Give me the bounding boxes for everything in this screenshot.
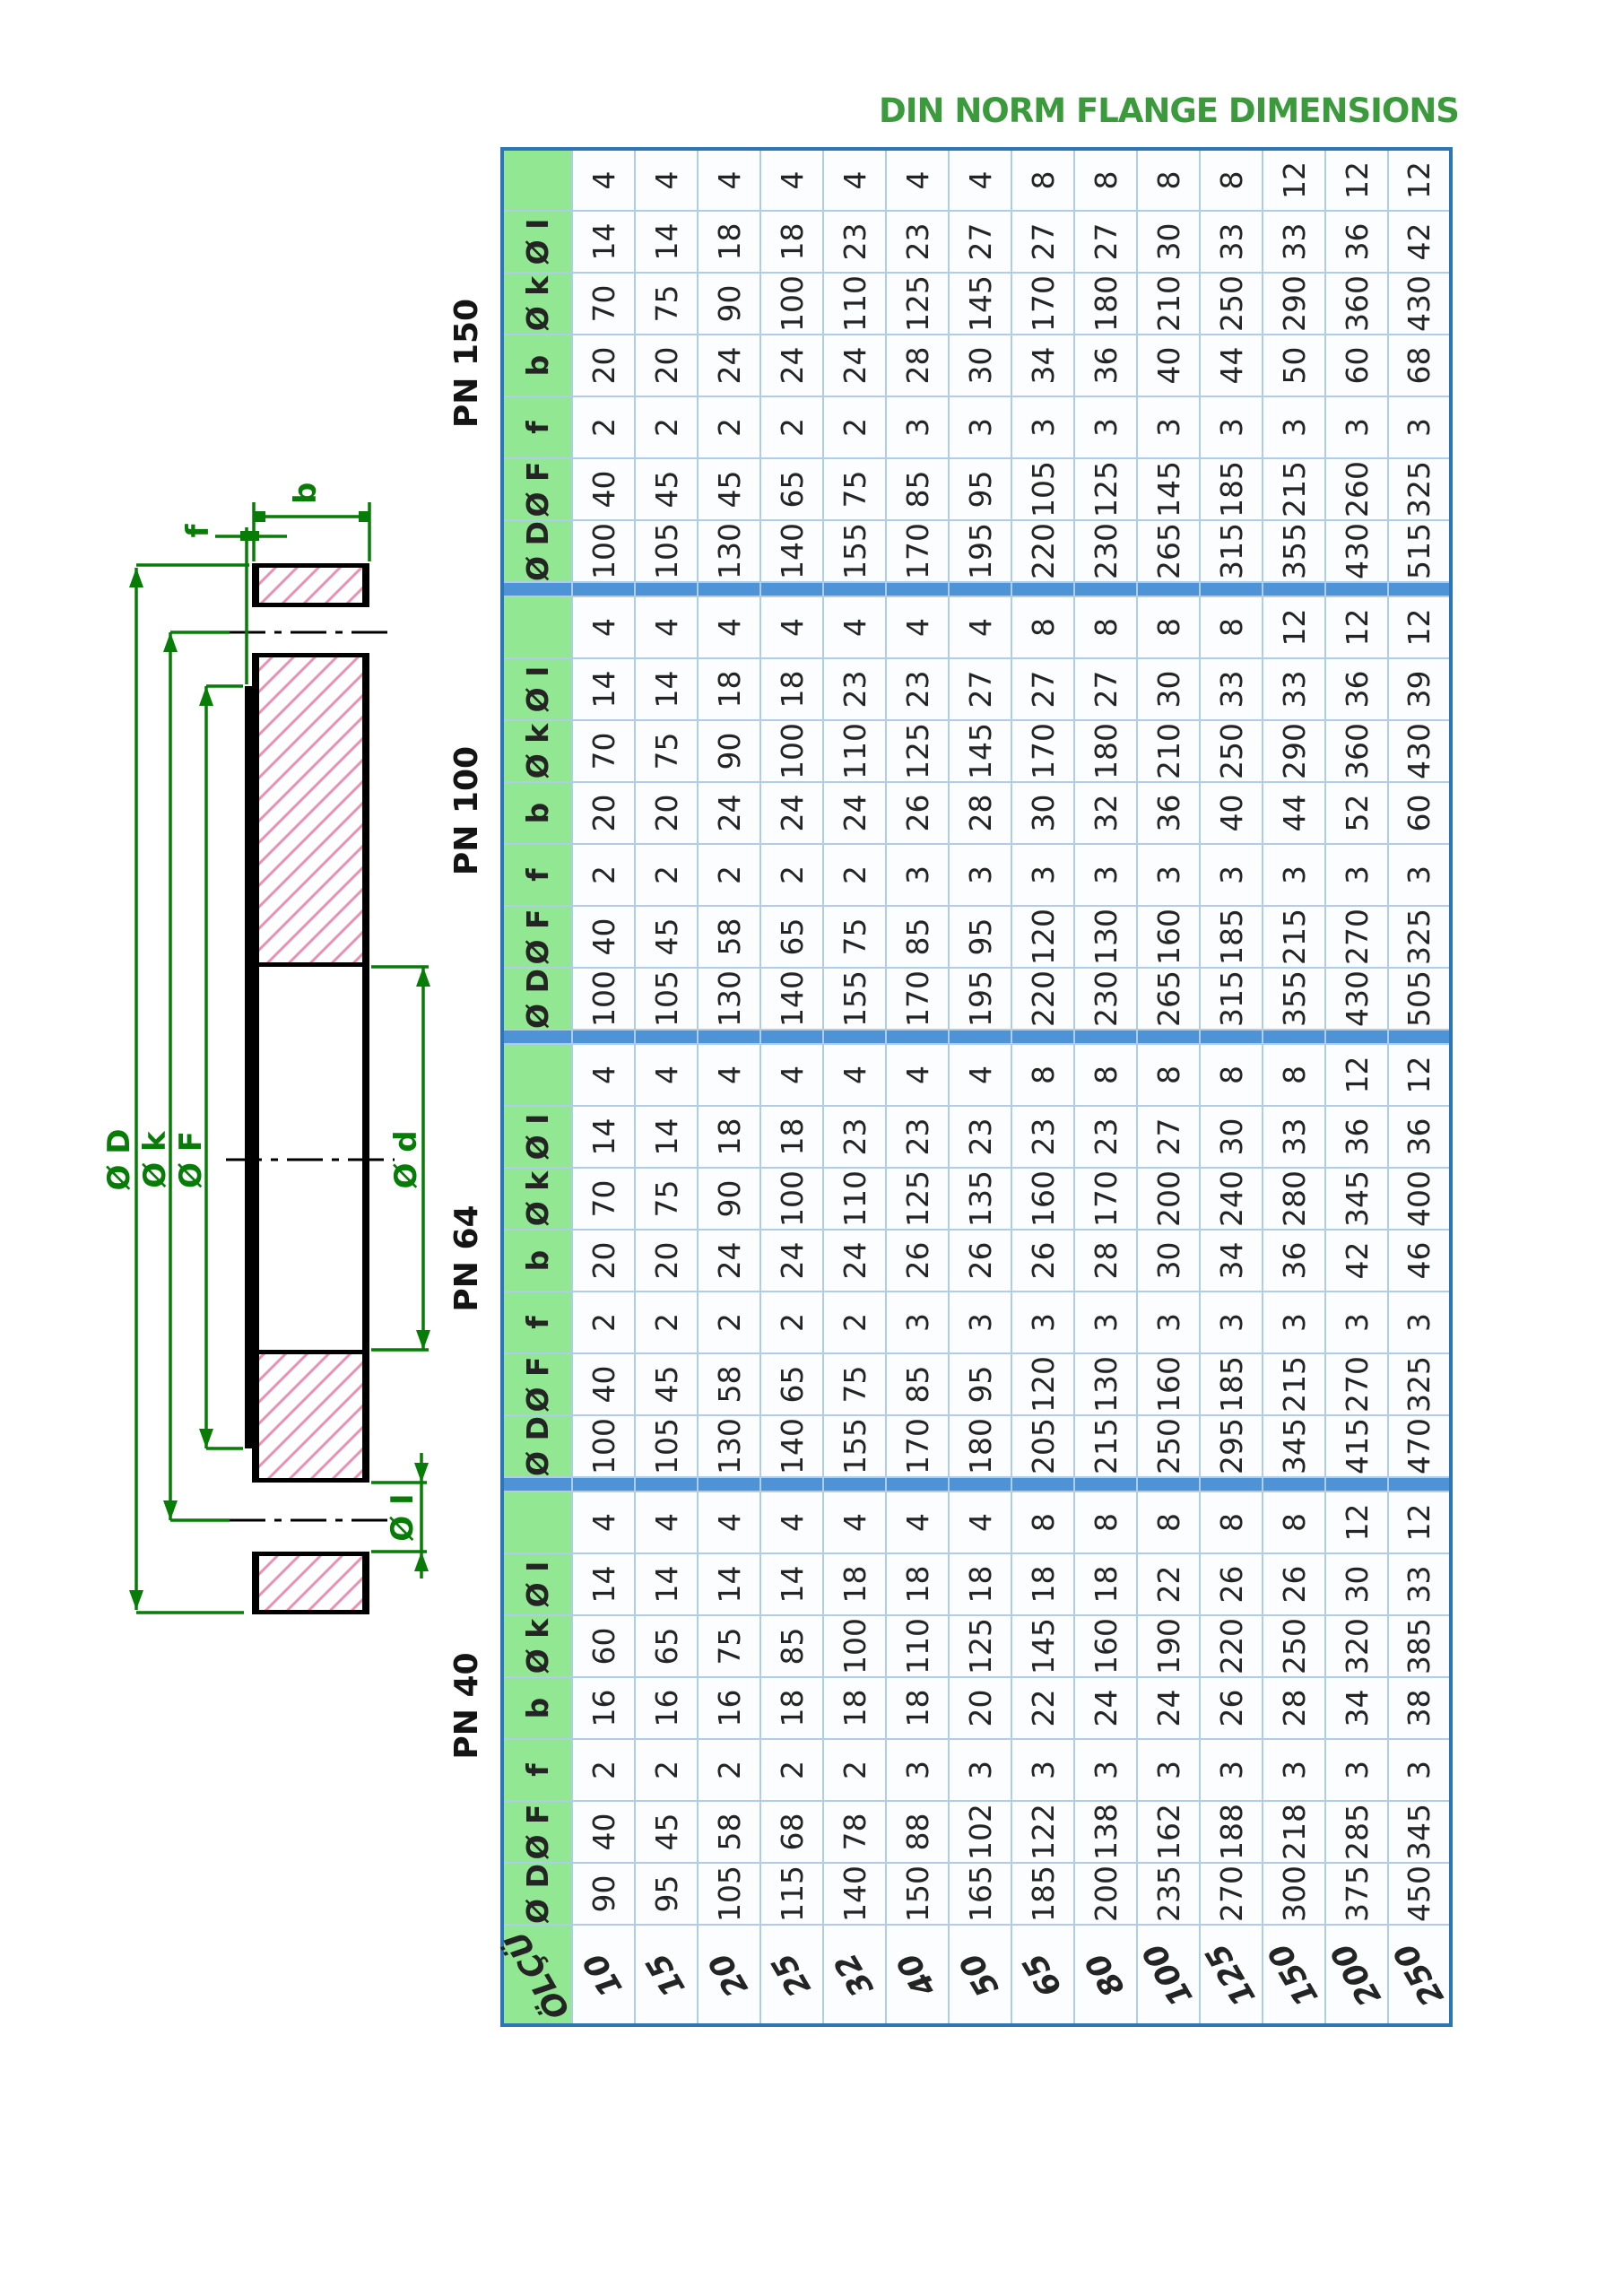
table-cell: 34 bbox=[1325, 1677, 1388, 1739]
group-separator bbox=[635, 1477, 698, 1492]
group-separator bbox=[1074, 1030, 1137, 1044]
table-cell: 3 bbox=[1388, 1291, 1451, 1353]
table-cell: 2 bbox=[823, 396, 886, 458]
table-cell: 3 bbox=[1200, 1291, 1263, 1353]
table-cell: 125 bbox=[886, 1168, 949, 1230]
table-cell: 430 bbox=[1325, 520, 1388, 582]
table-cell: 42 bbox=[1325, 1230, 1388, 1291]
table-cell: 4 bbox=[823, 149, 886, 211]
table-cell: 3 bbox=[886, 844, 949, 906]
table-cell: 16 bbox=[572, 1677, 635, 1739]
col-header: Ø D bbox=[502, 520, 572, 582]
table-cell: 90 bbox=[698, 1168, 760, 1230]
table-cell: 180 bbox=[1074, 273, 1137, 335]
table-cell: 170 bbox=[886, 1415, 949, 1477]
table-cell: 4 bbox=[886, 149, 949, 211]
table-cell: 14 bbox=[635, 211, 698, 273]
dim-line-F bbox=[206, 686, 243, 1448]
table-cell: 2 bbox=[698, 844, 760, 906]
table-cell: 8 bbox=[1074, 1492, 1137, 1553]
table-cell: 250 bbox=[1137, 1415, 1200, 1477]
table-cell: 75 bbox=[635, 273, 698, 335]
table-cell: 28 bbox=[949, 782, 1011, 844]
diagonal-label: 200 bbox=[1324, 1937, 1388, 2012]
table-cell: 26 bbox=[886, 1230, 949, 1291]
table-cell: 140 bbox=[760, 520, 823, 582]
table-cell: 45 bbox=[698, 458, 760, 520]
group-separator bbox=[886, 582, 949, 596]
group-separator bbox=[1388, 582, 1451, 596]
table-cell: 105 bbox=[698, 1863, 760, 1925]
table-cell: 4 bbox=[698, 149, 760, 211]
group-separator bbox=[1325, 582, 1388, 596]
group-separator bbox=[1137, 1477, 1200, 1492]
table-cell: 2 bbox=[760, 844, 823, 906]
table-cell: 375 bbox=[1325, 1863, 1388, 1925]
table-cell: 2 bbox=[823, 844, 886, 906]
table-cell: 24 bbox=[760, 782, 823, 844]
table-cell: 70 bbox=[572, 273, 635, 335]
table-cell: 23 bbox=[886, 658, 949, 720]
table-cell: 20 bbox=[635, 782, 698, 844]
group-separator bbox=[1263, 582, 1325, 596]
table-cell: 12 bbox=[1263, 596, 1325, 658]
table-cell: 27 bbox=[949, 211, 1011, 273]
table-cell: 450 bbox=[1388, 1863, 1451, 1925]
group-separator bbox=[1325, 1477, 1388, 1492]
table-cell: 30 bbox=[1137, 1230, 1200, 1291]
table-cell: 33 bbox=[1200, 211, 1263, 273]
table-cell: 4 bbox=[572, 596, 635, 658]
table-cell: 145 bbox=[949, 273, 1011, 335]
col-header: f bbox=[502, 396, 572, 458]
group-separator bbox=[502, 582, 572, 596]
table-cell: 78 bbox=[823, 1801, 886, 1863]
table-cell: 122 bbox=[1011, 1801, 1074, 1863]
table-cell: 8 bbox=[1074, 596, 1137, 658]
table-cell: 140 bbox=[760, 1415, 823, 1477]
table-cell: 8 bbox=[1011, 1044, 1074, 1106]
col-header: b bbox=[502, 1677, 572, 1739]
table-cell: 315 bbox=[1200, 520, 1263, 582]
table-cell: 26 bbox=[886, 782, 949, 844]
table-cell: 65 bbox=[635, 1615, 698, 1677]
table-cell: 2 bbox=[635, 844, 698, 906]
table-cell: 355 bbox=[1263, 968, 1325, 1030]
table-cell: 4 bbox=[886, 1492, 949, 1553]
table-cell: 85 bbox=[886, 1353, 949, 1415]
table-cell: 100 bbox=[572, 520, 635, 582]
table-cell: 240 bbox=[1200, 1168, 1263, 1230]
group-separator bbox=[1011, 1477, 1074, 1492]
table-cell: 138 bbox=[1074, 1801, 1137, 1863]
table-cell: 180 bbox=[949, 1415, 1011, 1477]
dim-label-d: Ø d bbox=[388, 1130, 424, 1188]
col-header bbox=[502, 149, 572, 211]
table-cell: 33 bbox=[1263, 1106, 1325, 1168]
table-cell: 2 bbox=[823, 1739, 886, 1801]
table-cell: 18 bbox=[823, 1677, 886, 1739]
table-cell: 16 bbox=[635, 1677, 698, 1739]
table-cell: 45 bbox=[635, 1353, 698, 1415]
table-cell: 430 bbox=[1388, 273, 1451, 335]
table-cell: 90 bbox=[572, 1863, 635, 1925]
table-cell: 18 bbox=[760, 658, 823, 720]
table-cell: 52 bbox=[1325, 782, 1388, 844]
table-cell: 130 bbox=[1074, 906, 1137, 968]
table-cell: 4 bbox=[823, 596, 886, 658]
group-separator bbox=[1200, 1030, 1263, 1044]
table-cell: 18 bbox=[698, 658, 760, 720]
table-cell: 2 bbox=[635, 1739, 698, 1801]
table-cell: 195 bbox=[949, 520, 1011, 582]
table-cell: 30 bbox=[1325, 1553, 1388, 1615]
table-cell: 270 bbox=[1325, 906, 1388, 968]
table-cell: 18 bbox=[698, 211, 760, 273]
diagonal-label: 25 bbox=[765, 1946, 818, 2002]
table-cell: 200 bbox=[1137, 1168, 1200, 1230]
table-cell: 215 bbox=[1074, 1415, 1137, 1477]
table-cell: 3 bbox=[1325, 844, 1388, 906]
group-separator bbox=[1263, 1030, 1325, 1044]
table-cell: 88 bbox=[886, 1801, 949, 1863]
table-cell: 290 bbox=[1263, 720, 1325, 782]
table-cell: 26 bbox=[1200, 1677, 1263, 1739]
table-cell: 75 bbox=[823, 1353, 886, 1415]
size-label: 65 bbox=[1011, 1925, 1074, 2025]
table-cell: 85 bbox=[760, 1615, 823, 1677]
table-cell: 120 bbox=[1011, 906, 1074, 968]
table-cell: 14 bbox=[572, 658, 635, 720]
table-cell: 8 bbox=[1137, 1492, 1200, 1553]
table-cell: 12 bbox=[1388, 596, 1451, 658]
table-cell: 44 bbox=[1200, 335, 1263, 396]
group-separator bbox=[760, 1477, 823, 1492]
table-cell: 3 bbox=[1074, 396, 1137, 458]
group-separator bbox=[760, 582, 823, 596]
table-cell: 75 bbox=[823, 458, 886, 520]
table-cell: 105 bbox=[635, 1415, 698, 1477]
table-cell: 205 bbox=[1011, 1415, 1074, 1477]
table-cell: 285 bbox=[1325, 1801, 1388, 1863]
table-cell: 3 bbox=[1388, 1739, 1451, 1801]
col-header: b bbox=[502, 782, 572, 844]
table-cell: 3 bbox=[1137, 1291, 1200, 1353]
dim-label-k: Ø k bbox=[137, 1130, 173, 1188]
table-cell: 12 bbox=[1388, 1492, 1451, 1553]
group-separator bbox=[698, 1030, 760, 1044]
table-cell: 20 bbox=[635, 335, 698, 396]
table-cell: 33 bbox=[1200, 658, 1263, 720]
table-cell: 8 bbox=[1200, 149, 1263, 211]
table-cell: 14 bbox=[572, 211, 635, 273]
rotated-sheet: PN 40PN 64PN 100PN 150 bbox=[0, 143, 1493, 2027]
table-cell: 30 bbox=[1200, 1106, 1263, 1168]
table-cell: 18 bbox=[823, 1553, 886, 1615]
flange-drawing: Ø D Ø k Ø F Ø d Ø I f b bbox=[76, 475, 439, 1641]
table-cell: 24 bbox=[760, 1230, 823, 1291]
table-cell: 220 bbox=[1011, 520, 1074, 582]
size-label: 50 bbox=[949, 1925, 1011, 2025]
group-separator bbox=[1011, 1030, 1074, 1044]
col-header: b bbox=[502, 335, 572, 396]
table-cell: 3 bbox=[1200, 1739, 1263, 1801]
table-cell: 14 bbox=[760, 1553, 823, 1615]
table-cell: 185 bbox=[1200, 1353, 1263, 1415]
col-header: Ø D bbox=[502, 1415, 572, 1477]
table-cell: 105 bbox=[635, 968, 698, 1030]
table-cell: 26 bbox=[1200, 1553, 1263, 1615]
table-cell: 33 bbox=[1263, 211, 1325, 273]
table-cell: 23 bbox=[886, 211, 949, 273]
table-cell: 210 bbox=[1137, 273, 1200, 335]
table-cell: 45 bbox=[635, 458, 698, 520]
table-cell: 145 bbox=[949, 720, 1011, 782]
table-cell: 4 bbox=[698, 1044, 760, 1106]
table-cell: 2 bbox=[572, 844, 635, 906]
size-label: 40 bbox=[886, 1925, 949, 2025]
col-header: Ø k bbox=[502, 273, 572, 335]
table-cell: 36 bbox=[1325, 658, 1388, 720]
table-cell: 95 bbox=[949, 906, 1011, 968]
col-header: f bbox=[502, 1291, 572, 1353]
table-cell: 180 bbox=[1074, 720, 1137, 782]
table-cell: 27 bbox=[1011, 658, 1074, 720]
table-cell: 155 bbox=[823, 520, 886, 582]
table-cell: 20 bbox=[572, 782, 635, 844]
table-cell: 2 bbox=[635, 1291, 698, 1353]
table-cell: 110 bbox=[823, 273, 886, 335]
table-cell: 2 bbox=[823, 1291, 886, 1353]
pn-label: PN 150 bbox=[448, 256, 485, 471]
table-cell: 218 bbox=[1263, 1801, 1325, 1863]
table-cell: 45 bbox=[635, 1801, 698, 1863]
table-cell: 22 bbox=[1011, 1677, 1074, 1739]
group-separator bbox=[1074, 582, 1137, 596]
size-label: 32 bbox=[823, 1925, 886, 2025]
table-cell: 430 bbox=[1388, 720, 1451, 782]
table-cell: 220 bbox=[1011, 968, 1074, 1030]
table-cell: 110 bbox=[886, 1615, 949, 1677]
table-cell: 470 bbox=[1388, 1415, 1451, 1477]
group-separator bbox=[1388, 1030, 1451, 1044]
table-cell: 8 bbox=[1263, 1492, 1325, 1553]
size-label: 10 bbox=[572, 1925, 635, 2025]
table-cell: 2 bbox=[698, 1291, 760, 1353]
raised-face bbox=[245, 686, 254, 1448]
table-cell: 3 bbox=[1011, 396, 1074, 458]
flange-table: ÖLÇÜØ DØ FfbØ kØ IØ DØ FfbØ kØ IØ DØ Ffb… bbox=[500, 147, 1453, 2027]
table-cell: 4 bbox=[635, 149, 698, 211]
col-header: b bbox=[502, 1230, 572, 1291]
table-cell: 515 bbox=[1388, 520, 1451, 582]
table-cell: 40 bbox=[572, 1353, 635, 1415]
table-cell: 95 bbox=[635, 1863, 698, 1925]
table-cell: 3 bbox=[886, 1739, 949, 1801]
table-cell: 4 bbox=[760, 149, 823, 211]
table-cell: 24 bbox=[823, 335, 886, 396]
table-cell: 24 bbox=[1137, 1677, 1200, 1739]
table-cell: 3 bbox=[1074, 844, 1137, 906]
table-cell: 75 bbox=[635, 720, 698, 782]
table-cell: 90 bbox=[698, 273, 760, 335]
table-cell: 27 bbox=[1074, 658, 1137, 720]
table-cell: 300 bbox=[1263, 1863, 1325, 1925]
table-cell: 68 bbox=[760, 1801, 823, 1863]
table-cell: 250 bbox=[1263, 1615, 1325, 1677]
table-cell: 36 bbox=[1325, 211, 1388, 273]
table-cell: 3 bbox=[1263, 1291, 1325, 1353]
table-cell: 36 bbox=[1263, 1230, 1325, 1291]
table-cell: 75 bbox=[635, 1168, 698, 1230]
pn-label: PN 40 bbox=[448, 1598, 485, 1813]
group-separator bbox=[502, 1030, 572, 1044]
table-cell: 2 bbox=[572, 1291, 635, 1353]
group-separator bbox=[572, 1477, 635, 1492]
table-cell: 3 bbox=[1388, 844, 1451, 906]
table-cell: 26 bbox=[1263, 1553, 1325, 1615]
table-cell: 14 bbox=[572, 1553, 635, 1615]
group-separator bbox=[502, 1477, 572, 1492]
table-cell: 28 bbox=[1074, 1230, 1137, 1291]
table-cell: 40 bbox=[572, 906, 635, 968]
table-cell: 125 bbox=[949, 1615, 1011, 1677]
group-separator bbox=[1200, 1477, 1263, 1492]
group-separator bbox=[823, 1030, 886, 1044]
table-cell: 3 bbox=[886, 396, 949, 458]
table-cell: 185 bbox=[1200, 458, 1263, 520]
table-cell: 215 bbox=[1263, 906, 1325, 968]
table-cell: 28 bbox=[1263, 1677, 1325, 1739]
table-cell: 23 bbox=[949, 1106, 1011, 1168]
table-cell: 130 bbox=[698, 520, 760, 582]
table-cell: 4 bbox=[823, 1044, 886, 1106]
table-cell: 385 bbox=[1388, 1615, 1451, 1677]
table-cell: 65 bbox=[760, 906, 823, 968]
table-cell: 3 bbox=[1137, 844, 1200, 906]
table-cell: 415 bbox=[1325, 1415, 1388, 1477]
table-cell: 23 bbox=[1074, 1106, 1137, 1168]
table-cell: 8 bbox=[1074, 149, 1137, 211]
table-cell: 140 bbox=[823, 1863, 886, 1925]
table-cell: 115 bbox=[760, 1863, 823, 1925]
diagonal-label: 10 bbox=[577, 1946, 629, 2002]
table-cell: 280 bbox=[1263, 1168, 1325, 1230]
table-cell: 36 bbox=[1325, 1106, 1388, 1168]
table-cell: 155 bbox=[823, 968, 886, 1030]
size-label: 200 bbox=[1325, 1925, 1388, 2025]
table-cell: 4 bbox=[949, 1492, 1011, 1553]
col-header: Ø D bbox=[502, 968, 572, 1030]
table-cell: 3 bbox=[1325, 396, 1388, 458]
table-cell: 23 bbox=[823, 658, 886, 720]
pn-label: PN 100 bbox=[448, 703, 485, 918]
col-header: Ø k bbox=[502, 720, 572, 782]
group-separator bbox=[1263, 1477, 1325, 1492]
group-separator bbox=[572, 582, 635, 596]
table-cell: 230 bbox=[1074, 520, 1137, 582]
table-cell: 18 bbox=[886, 1677, 949, 1739]
table-cell: 26 bbox=[1011, 1230, 1074, 1291]
table-cell: 130 bbox=[1074, 1353, 1137, 1415]
table-cell: 30 bbox=[1011, 782, 1074, 844]
page-title: DIN NORM FLANGE DIMENSIONS bbox=[879, 91, 1459, 130]
size-label: 20 bbox=[698, 1925, 760, 2025]
table-cell: 130 bbox=[698, 1415, 760, 1477]
diagonal-label: 40 bbox=[890, 1946, 943, 2002]
group-separator bbox=[823, 582, 886, 596]
table-cell: 3 bbox=[1325, 1291, 1388, 1353]
table-cell: 160 bbox=[1137, 906, 1200, 968]
table-cell: 75 bbox=[698, 1615, 760, 1677]
table-cell: 125 bbox=[886, 720, 949, 782]
table-cell: 36 bbox=[1137, 782, 1200, 844]
table-cell: 12 bbox=[1388, 149, 1451, 211]
table-cell: 16 bbox=[698, 1677, 760, 1739]
size-label: 80 bbox=[1074, 1925, 1137, 2025]
table-cell: 4 bbox=[572, 1492, 635, 1553]
table-cell: 23 bbox=[823, 1106, 886, 1168]
table-cell: 20 bbox=[635, 1230, 698, 1291]
col-header: Ø k bbox=[502, 1615, 572, 1677]
dim-label-D: Ø D bbox=[101, 1129, 137, 1191]
table-cell: 4 bbox=[698, 596, 760, 658]
table-cell: 155 bbox=[823, 1415, 886, 1477]
table-cell: 100 bbox=[760, 1168, 823, 1230]
table-cell: 145 bbox=[1137, 458, 1200, 520]
table-cell: 20 bbox=[949, 1677, 1011, 1739]
table-cell: 345 bbox=[1388, 1801, 1451, 1863]
table-cell: 36 bbox=[1388, 1106, 1451, 1168]
table-cell: 8 bbox=[1074, 1044, 1137, 1106]
table-cell: 14 bbox=[635, 1553, 698, 1615]
table-cell: 18 bbox=[698, 1106, 760, 1168]
table-cell: 140 bbox=[760, 968, 823, 1030]
table-cell: 8 bbox=[1200, 1044, 1263, 1106]
table-cell: 18 bbox=[949, 1553, 1011, 1615]
dim-label-b: b bbox=[288, 483, 324, 504]
col-header: Ø I bbox=[502, 211, 572, 273]
table-cell: 345 bbox=[1263, 1415, 1325, 1477]
diagonal-label: 80 bbox=[1079, 1946, 1132, 2002]
table-cell: 24 bbox=[1074, 1677, 1137, 1739]
group-separator bbox=[1388, 1477, 1451, 1492]
table-cell: 4 bbox=[760, 1492, 823, 1553]
table-cell: 4 bbox=[886, 1044, 949, 1106]
group-separator bbox=[635, 582, 698, 596]
table-cell: 265 bbox=[1137, 520, 1200, 582]
table-cell: 4 bbox=[572, 149, 635, 211]
table-cell: 3 bbox=[1325, 1739, 1388, 1801]
table-cell: 27 bbox=[1011, 211, 1074, 273]
table-cell: 40 bbox=[572, 458, 635, 520]
group-separator bbox=[886, 1030, 949, 1044]
table-cell: 12 bbox=[1263, 149, 1325, 211]
diagonal-label: 20 bbox=[702, 1946, 755, 2002]
table-cell: 85 bbox=[886, 906, 949, 968]
table-cell: 230 bbox=[1074, 968, 1137, 1030]
table-cell: 430 bbox=[1325, 968, 1388, 1030]
table-cell: 170 bbox=[1074, 1168, 1137, 1230]
table-cell: 165 bbox=[949, 1863, 1011, 1925]
table-cell: 30 bbox=[949, 335, 1011, 396]
col-header bbox=[502, 596, 572, 658]
table-cell: 188 bbox=[1200, 1801, 1263, 1863]
table-cell: 24 bbox=[698, 782, 760, 844]
col-header: Ø I bbox=[502, 1553, 572, 1615]
table-cell: 315 bbox=[1200, 968, 1263, 1030]
dim-line-k bbox=[170, 632, 230, 1520]
